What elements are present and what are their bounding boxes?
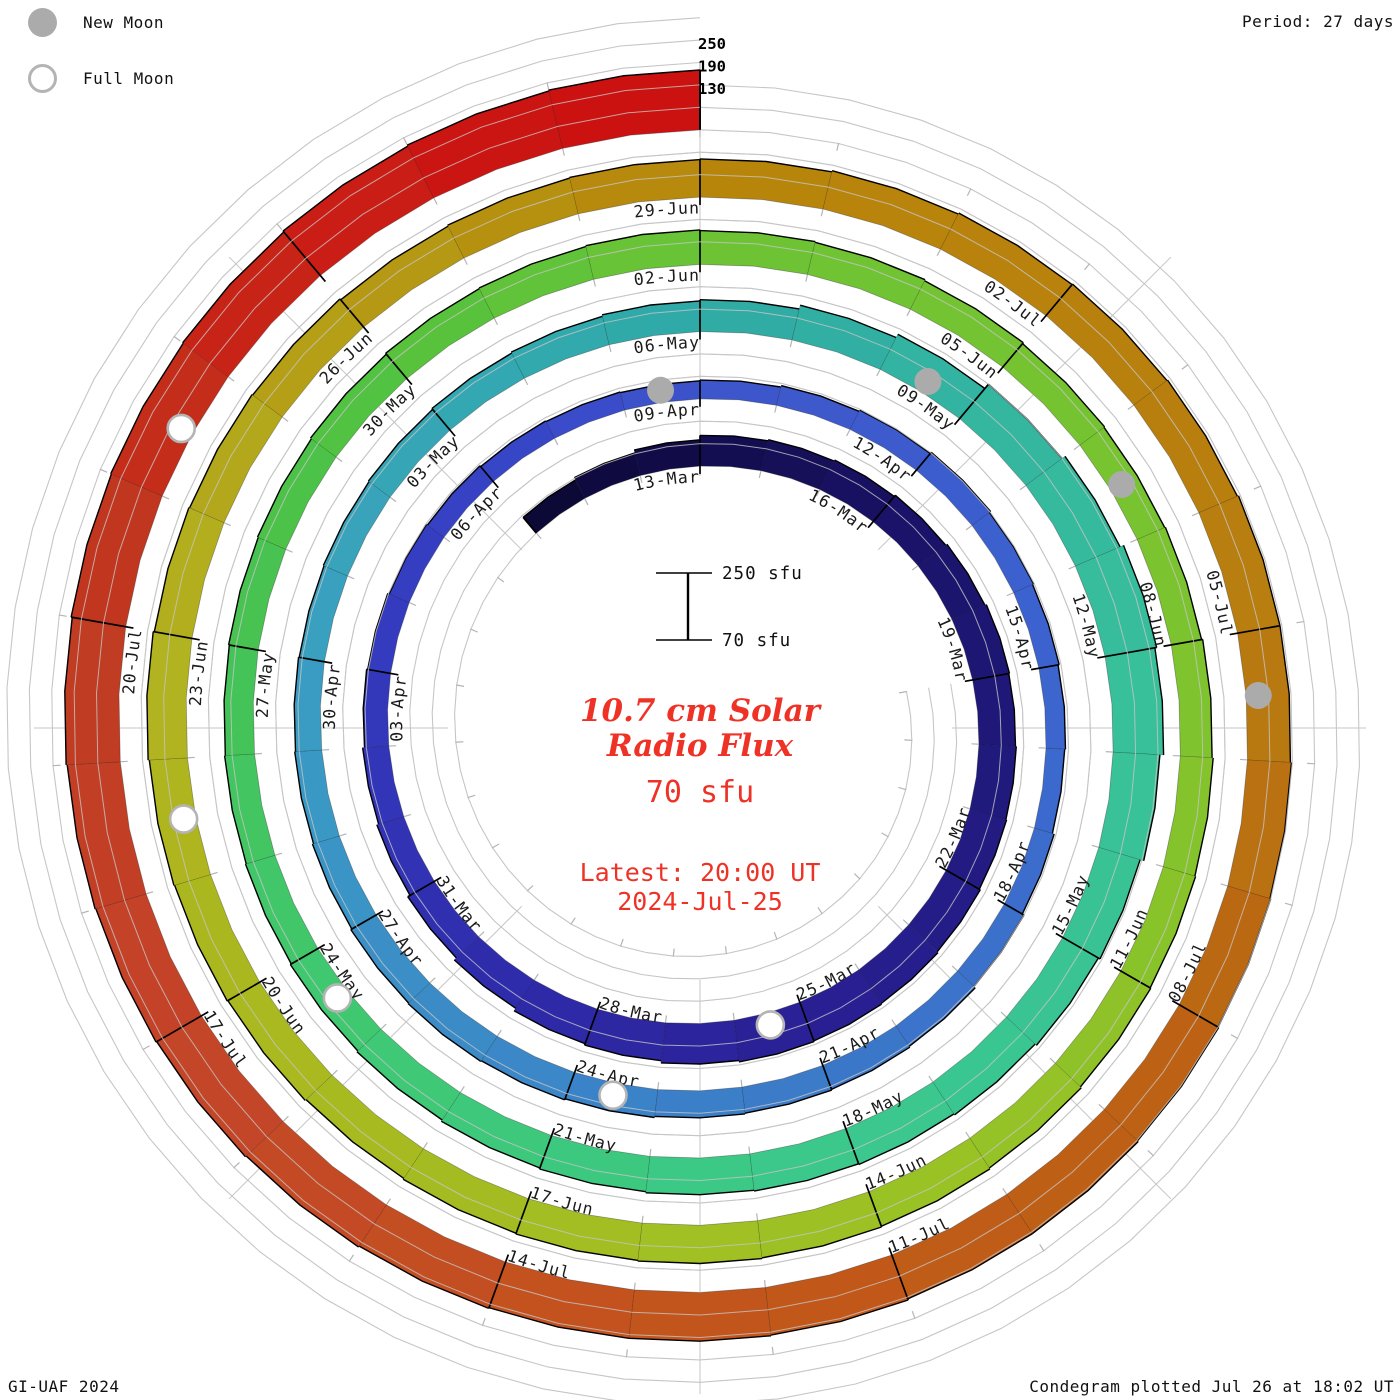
day-tick	[1221, 884, 1229, 886]
flux-bar-day	[808, 242, 926, 309]
day-tick	[966, 525, 972, 530]
day-tick	[497, 1030, 501, 1037]
day-tick	[847, 429, 851, 436]
day-tick	[733, 1013, 734, 1021]
day-tick	[966, 1132, 970, 1139]
day-tick	[898, 787, 906, 789]
day-tick	[464, 257, 468, 264]
day-tick	[349, 1255, 353, 1262]
day-tick	[757, 1213, 758, 1221]
flux-bar-day	[792, 305, 896, 369]
new-moon-marker	[647, 377, 674, 404]
day-tick	[497, 577, 503, 582]
flux-bar-day	[629, 1288, 771, 1342]
day-tick	[837, 143, 839, 151]
day-tick	[547, 82, 549, 90]
new-moon-marker	[914, 368, 941, 395]
flux-bar-day	[777, 386, 860, 430]
latest-flux-value: 70 sfu	[646, 775, 754, 810]
flux-bar-day	[432, 353, 524, 430]
radial-axis-labels: 250190130	[698, 35, 726, 98]
day-tick	[282, 417, 288, 422]
day-tick	[937, 249, 941, 256]
flux-bar-day	[407, 91, 562, 198]
day-tick	[100, 469, 107, 472]
day-tick	[174, 336, 180, 341]
date-label: 29-Jun	[633, 198, 700, 221]
day-tick	[1148, 1150, 1154, 1155]
flux-bar-day	[574, 453, 640, 498]
day-tick	[912, 1311, 915, 1319]
flux-bar-day	[765, 1255, 908, 1335]
day-tick	[1069, 566, 1076, 569]
credit-label: GI-UAF 2024	[8, 1377, 119, 1396]
new-moon-marker	[1108, 471, 1135, 498]
full-moon-marker	[599, 1082, 626, 1109]
day-tick	[625, 410, 627, 418]
day-tick	[456, 685, 464, 686]
day-tick	[882, 833, 889, 837]
day-tick	[877, 369, 881, 376]
day-tick	[903, 920, 909, 925]
day-tick	[1074, 445, 1080, 450]
full-moon-marker	[168, 415, 195, 442]
day-tick	[1020, 485, 1026, 490]
flux-bar-day	[1039, 665, 1066, 749]
day-tick	[228, 376, 234, 381]
day-tick	[534, 974, 538, 981]
day-tick	[562, 148, 564, 156]
day-tick	[821, 208, 823, 216]
day-tick	[536, 533, 541, 539]
day-tick	[277, 224, 282, 230]
day-tick	[285, 549, 292, 552]
day-tick	[759, 470, 761, 478]
day-tick	[790, 339, 792, 347]
day-tick	[650, 1149, 651, 1157]
day-tick	[460, 1086, 464, 1093]
scale-bar-label: 250 sfu	[722, 564, 803, 584]
day-tick	[470, 629, 477, 632]
flux-bar-day	[916, 452, 990, 525]
new-moon-icon	[28, 8, 57, 37]
day-tick	[1003, 1188, 1007, 1195]
flux-bar-day	[1228, 760, 1292, 899]
day-tick	[1085, 264, 1090, 270]
day-tick	[912, 565, 918, 570]
day-tick	[571, 918, 575, 925]
day-tick	[952, 966, 958, 971]
day-tick	[234, 1162, 240, 1167]
legend-item-new-moon: New Moon	[28, 8, 164, 37]
flux-bar-day	[546, 392, 625, 438]
day-tick	[283, 1116, 289, 1121]
day-tick	[1130, 539, 1137, 542]
day-tick	[578, 213, 580, 221]
day-tick	[162, 496, 169, 499]
day-tick	[634, 1283, 635, 1291]
flux-bar-day	[958, 904, 1024, 987]
day-tick	[774, 932, 777, 940]
flux-bar-day	[368, 593, 409, 673]
day-tick	[494, 318, 498, 325]
flux-bar-day	[154, 508, 224, 639]
legend-item-full-moon: Full Moon	[28, 64, 174, 93]
plotted-timestamp: Condegram plotted Jul 26 at 18:02 UT	[1029, 1377, 1394, 1396]
radial-axis-label: 130	[698, 80, 726, 98]
day-tick	[143, 1046, 150, 1050]
date-label: 03-Apr	[387, 674, 410, 742]
flux-bar-day	[1134, 380, 1238, 513]
flux-bar-day	[408, 983, 497, 1061]
day-tick	[443, 537, 449, 542]
day-tick	[1296, 621, 1304, 622]
flux-bar-day	[258, 439, 337, 550]
day-tick	[907, 309, 911, 316]
day-tick	[1040, 1244, 1044, 1251]
flux-bar-day	[638, 1221, 762, 1264]
full-moon-marker	[757, 1011, 784, 1038]
day-tick	[892, 1020, 896, 1027]
day-tick	[775, 405, 777, 413]
full-moon-label: Full Moon	[83, 69, 174, 88]
day-tick	[642, 1216, 643, 1224]
flux-bar-day	[646, 1154, 754, 1195]
day-tick	[1128, 405, 1134, 410]
day-tick	[584, 498, 588, 505]
day-tick	[1192, 513, 1199, 516]
day-tick	[929, 1076, 933, 1083]
day-tick	[524, 378, 528, 385]
day-tick	[478, 932, 484, 937]
day-tick	[1285, 903, 1293, 905]
day-tick	[386, 1199, 390, 1206]
day-tick	[725, 946, 726, 954]
day-tick	[772, 1347, 773, 1355]
day-tick	[1027, 826, 1035, 828]
day-tick	[673, 949, 674, 957]
flux-bar-day	[323, 482, 390, 576]
day-tick	[403, 137, 407, 144]
full-moon-marker	[170, 806, 197, 833]
day-tick	[210, 872, 218, 874]
chart-title: 10.7 cm Solar Radio Flux	[580, 694, 820, 764]
day-tick	[380, 1024, 386, 1029]
day-tick	[967, 188, 971, 195]
day-tick	[854, 874, 860, 879]
day-tick	[1099, 1104, 1105, 1109]
day-tick	[620, 939, 623, 947]
day-tick	[492, 844, 499, 848]
flux-bar-day	[1171, 639, 1212, 757]
flux-bar-day	[1035, 748, 1065, 833]
day-tick	[626, 1349, 627, 1357]
flux-bar-day	[479, 247, 594, 319]
day-tick	[59, 615, 67, 616]
radial-axis-label: 190	[698, 57, 726, 75]
flux-bar-day	[448, 178, 579, 258]
flux-bar-day	[742, 1066, 832, 1114]
condegram-page: 13-Mar16-Mar19-Mar22-Mar25-Mar28-Mar31-M…	[0, 0, 1400, 1400]
flux-bar-day	[700, 159, 832, 209]
day-tick	[223, 522, 230, 525]
flux-bar-day	[67, 762, 146, 909]
flux-bar-day	[147, 632, 192, 761]
day-tick	[1156, 865, 1164, 867]
full-moon-marker	[324, 984, 351, 1011]
latest-timestamp: Latest: 20:00 UT 2024-Jul-25	[580, 858, 821, 916]
day-tick	[482, 1318, 485, 1326]
day-tick	[339, 834, 347, 836]
day-tick	[1092, 845, 1100, 847]
day-tick	[423, 1142, 427, 1149]
flux-bar-day	[661, 1020, 739, 1064]
period-label: Period: 27 days	[1242, 12, 1394, 31]
day-tick	[429, 978, 435, 983]
day-tick	[274, 853, 282, 855]
flux-bar-day	[1099, 752, 1160, 861]
day-tick	[1050, 1058, 1056, 1063]
day-tick	[609, 344, 611, 352]
flux-bar-day	[403, 1149, 528, 1234]
flux-bar-day	[758, 1192, 882, 1258]
flux-bar-day	[377, 817, 435, 896]
day-tick	[899, 692, 907, 693]
day-tick	[741, 1080, 742, 1088]
flux-bar-day	[299, 566, 347, 662]
flux-bar-day	[700, 231, 815, 275]
day-tick	[1182, 365, 1188, 370]
day-tick	[765, 1280, 766, 1288]
day-tick	[468, 795, 476, 797]
day-tick	[81, 911, 89, 913]
radial-axis-label: 250	[698, 35, 726, 53]
day-tick	[1001, 1012, 1007, 1017]
flux-scale-bar: 250 sfu70 sfu	[656, 564, 803, 651]
day-tick	[665, 1015, 666, 1023]
flux-bar-day	[700, 380, 781, 405]
flux-bar-day	[1199, 496, 1280, 634]
full-moon-icon	[28, 64, 57, 93]
day-tick	[594, 279, 596, 287]
flux-bar-day	[973, 674, 1016, 747]
flux-bar-day	[700, 435, 768, 470]
flux-bar-day	[357, 1029, 460, 1120]
flux-bar-day	[481, 421, 555, 482]
flux-bar-day	[224, 645, 258, 756]
day-tick	[347, 576, 354, 579]
day-tick	[1231, 1035, 1238, 1039]
flux-bar-day	[389, 524, 444, 602]
day-tick	[527, 886, 533, 891]
new-moon-marker	[1245, 682, 1272, 709]
day-tick	[403, 815, 411, 817]
day-tick	[145, 892, 153, 894]
day-tick	[658, 1082, 659, 1090]
scale-bar-label: 70 sfu	[722, 631, 791, 651]
day-tick	[332, 1070, 338, 1075]
day-tick	[749, 1147, 750, 1155]
day-tick	[336, 457, 342, 462]
new-moon-label: New Moon	[83, 13, 164, 32]
day-tick	[806, 274, 808, 282]
day-tick	[409, 602, 416, 605]
day-tick	[1007, 592, 1014, 595]
day-tick	[390, 497, 396, 502]
flux-bar-day	[523, 480, 585, 533]
day-tick	[1254, 486, 1261, 489]
flux-bar-day	[96, 894, 201, 1042]
day-tick	[434, 197, 438, 204]
day-tick	[554, 438, 558, 445]
